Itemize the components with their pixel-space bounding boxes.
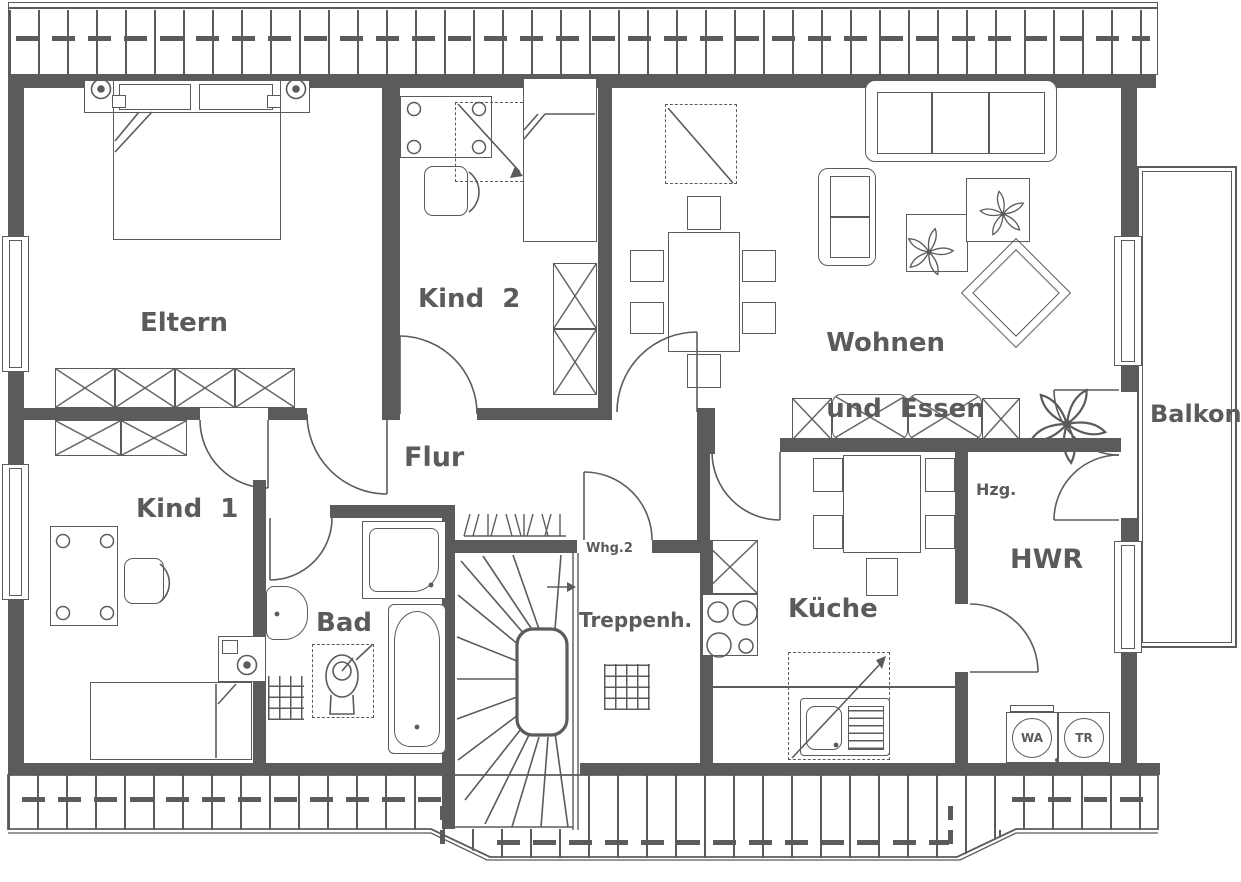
kind2-roof-window [455,102,533,182]
room-label-hwr: HWR [1010,544,1083,575]
floor-plan: WA TR [0,0,1241,882]
eltern-nightstand-right-tray [267,95,281,108]
kitchen-table [843,455,921,553]
eltern-blanket [113,112,281,240]
kitchen-sink-basin [806,706,842,750]
kind2-wardrobe-segment [553,329,597,395]
roof-dashed-bottom-left [22,797,442,802]
kitchen-stool [866,558,898,596]
door-arc-kueche [712,452,780,520]
roof-fascia-line [9,7,1157,9]
roof-rafters-bottom [8,775,1160,830]
roof-band-bottom [8,775,1160,830]
kind1-chair [124,558,164,604]
wall-bottom-2 [580,763,1160,775]
room-label-kind1: Kind 1 [136,494,238,524]
kind1-nightstand-tray [222,640,238,654]
dryer-label: TR [1075,731,1092,745]
sideboard-segment [982,398,1020,440]
eltern-wardrobe-segment [115,368,175,408]
roof-dashed-step-left [440,797,445,844]
kitchen-tall-cabinet [702,540,758,594]
door-arc-kind2 [400,336,477,414]
treppenhaus-floor-grid [604,664,650,710]
wall-stair-north-2 [652,540,700,553]
wall-left-3 [8,598,24,768]
dining-chair [687,354,721,388]
door-arc-hwr [970,604,1038,672]
dining-chair [630,250,664,282]
room-label-wohnen: Wohnen und Essen [790,294,985,459]
annotation-heating: Hzg. [976,480,1016,499]
room-label-treppenhaus: Treppenh. [579,608,692,632]
room-label-kind2: Kind 2 [418,284,520,314]
window-hwr [1114,541,1142,653]
eltern-wardrobe-segment [55,368,115,408]
wall-left-2 [8,370,24,466]
stair-direction-arrow [567,582,576,592]
window-frame [1121,545,1135,649]
wall-bottom-1 [8,763,455,775]
room-label-kueche: Küche [788,594,878,624]
coffee-table [906,214,968,272]
dryer-drum: TR [1064,718,1104,758]
room-label-balkon: Balkon [1150,400,1241,428]
roof-dashed-bottom-right [1012,797,1148,802]
window-eltern [2,236,29,372]
room-label-wohnen-line2: und Essen [826,394,985,424]
window-frame [9,468,22,596]
room-label-flur: Flur [404,442,464,473]
roof-dashed-line-top [16,36,1150,41]
kitchen-chair [925,458,955,492]
eltern-wardrobe-segment [175,368,235,408]
washer-top-line [1010,705,1054,712]
annotation-apartment: Whg.2 [586,541,633,556]
kitchen-chair [813,515,843,549]
bathroom-sink [266,586,308,640]
wall-stair-north-1 [455,540,577,553]
wall-flur-north-3 [477,408,612,420]
shower-tray [369,528,439,592]
loveseat-divider [830,216,870,218]
dining-chair [742,250,776,282]
bathtub-inner [394,611,440,747]
plant-icon [1016,371,1120,474]
wall-flur-kueche [697,452,710,540]
kind1-bed [90,682,252,760]
wohnen-roof-window [665,104,737,184]
wall-flur-north-2 [268,408,307,420]
washing-machine-drum: WA [1012,718,1052,758]
room-label-eltern: Eltern [140,308,228,338]
kind1-wardrobe-segment [121,420,187,456]
wall-kind2-wohnen [598,88,612,420]
eltern-pillow-left [119,84,191,110]
dining-chair [687,196,721,230]
coffee-table [966,178,1030,242]
window-frame [9,240,22,368]
eltern-wardrobe-segment [235,368,295,408]
dining-chair [742,302,776,334]
kitchen-chair [813,458,843,492]
roof-dashed-bottom-middle [497,840,949,845]
eltern-nightstand-right [280,80,310,113]
door-arc-kind1 [200,420,268,488]
flur-slope-hatch [464,514,566,536]
wall-bad-north [330,505,442,518]
kind2-wardrobe-segment [553,263,597,329]
roof-dashed-step-right [948,797,953,844]
roof-rafters-top [9,10,1157,74]
room-label-bad: Bad [316,608,372,638]
armchair-diamond-inner [972,249,1060,337]
staircase-drawing [455,553,580,830]
eltern-nightstand-left [84,80,114,113]
wall-post-wohnen [697,408,715,454]
room-label-wohnen-line1: Wohnen [826,328,945,358]
wall-kind1-bad [253,480,266,763]
door-arc-balcony-lower [1054,455,1119,520]
door-arc-eltern [307,414,387,494]
staircase [455,553,580,829]
eltern-pillow-right [199,84,273,110]
window-frame [1121,240,1135,362]
dining-table [668,232,740,352]
wall-left-1 [8,75,24,238]
wall-flur-north-1 [24,408,200,420]
kitchen-sink-drainer [848,706,884,750]
door-arc-bad [270,518,332,580]
wall-right-4 [1121,651,1137,765]
sofa-divider [931,92,933,154]
window-wohnen [1114,236,1142,366]
bathroom-radiator [268,676,304,720]
wall-right-1 [1121,75,1137,240]
washing-machine-label: WA [1021,731,1043,745]
window-kind1 [2,464,29,600]
sofa-divider [988,92,990,154]
wall-right-2 [1121,362,1137,392]
wall-kueche-hwr-2 [955,672,968,763]
door-arc-apartment [584,472,652,540]
eltern-nightstand-left-tray [112,95,126,108]
wall-kueche-hwr-1 [955,438,968,604]
kind1-desk [50,526,118,626]
sofa-seat [877,92,1045,154]
dining-chair [630,302,664,334]
wall-eltern-kind2 [382,88,400,420]
kind2-bed [523,78,597,242]
kitchen-stove [702,594,758,656]
kitchen-chair [925,515,955,549]
toilet-roof-slope-box [312,644,374,718]
kind1-wardrobe-segment [55,420,121,456]
